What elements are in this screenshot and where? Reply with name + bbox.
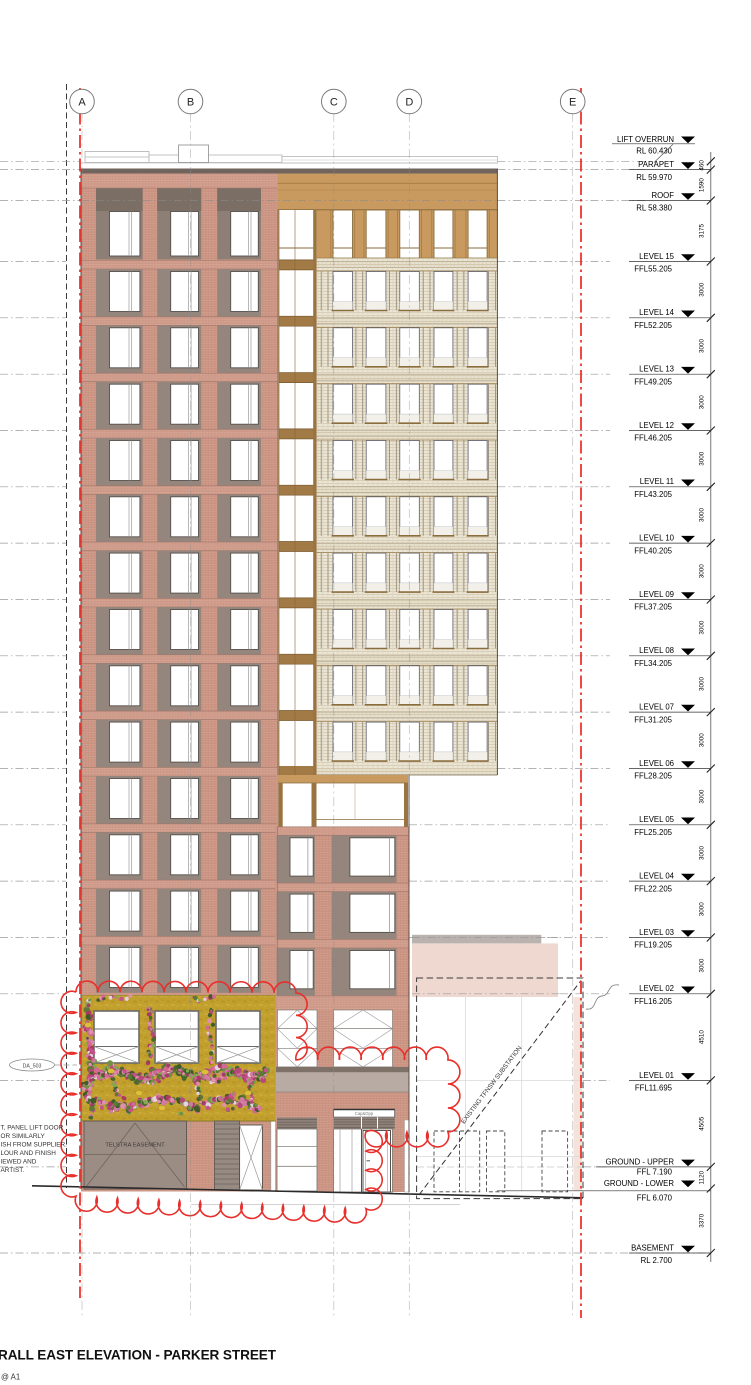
svg-text:FFL49.205: FFL49.205 [634,377,672,386]
svg-text:FFL34.205: FFL34.205 [634,659,672,668]
svg-text:LEVEL 09: LEVEL 09 [639,590,674,599]
svg-text:GROUND - UPPER: GROUND - UPPER [606,1157,675,1166]
svg-text:RL 2.700: RL 2.700 [641,1256,673,1265]
svg-text:FFL19.205: FFL19.205 [634,941,672,950]
svg-text:RL 59.970: RL 59.970 [636,173,672,182]
svg-text:LEVEL 01: LEVEL 01 [639,1071,674,1080]
svg-text:3000: 3000 [699,508,706,523]
svg-text:LEVEL 05: LEVEL 05 [639,815,674,824]
svg-text:3000: 3000 [699,339,706,354]
svg-text:1120: 1120 [699,1170,706,1184]
svg-text:ISH FROM SUPPLIER.: ISH FROM SUPPLIER. [1,1142,68,1149]
svg-text:BASEMENT: BASEMENT [631,1243,674,1252]
svg-text:FFL25.205: FFL25.205 [634,828,672,837]
svg-text:PARAPET: PARAPET [638,160,674,169]
svg-text:FFL46.205: FFL46.205 [634,434,672,443]
svg-text:@ A1: @ A1 [1,1373,20,1382]
svg-text:LOUR AND FINISH: LOUR AND FINISH [1,1150,57,1157]
svg-text:LEVEL 03: LEVEL 03 [639,928,674,937]
svg-text:LEVEL 04: LEVEL 04 [639,872,674,881]
svg-text:3000: 3000 [699,395,706,410]
svg-text:T, PANEL LIFT DOOR: T, PANEL LIFT DOOR [1,1125,64,1132]
svg-text:3000: 3000 [699,902,706,917]
svg-text:4510: 4510 [699,1030,706,1045]
svg-text:FFL 6.070: FFL 6.070 [637,1194,673,1203]
svg-text:FFL22.205: FFL22.205 [634,884,672,893]
svg-text:LEVEL 07: LEVEL 07 [639,703,674,712]
svg-text:FFL37.205: FFL37.205 [634,603,672,612]
svg-text:RL 60.430: RL 60.430 [636,146,672,155]
svg-text:FFL11.695: FFL11.695 [635,1084,673,1093]
svg-text:3000: 3000 [699,789,706,804]
svg-text:4505: 4505 [699,1116,706,1131]
svg-text:3000: 3000 [699,282,706,297]
svg-text:FFL40.205: FFL40.205 [634,546,672,555]
svg-text:LEVEL 14: LEVEL 14 [639,308,674,317]
svg-text:FFL31.205: FFL31.205 [634,715,672,724]
svg-text:3370: 3370 [699,1213,706,1228]
svg-text:3000: 3000 [699,677,706,692]
svg-text:GROUND - LOWER: GROUND - LOWER [604,1179,675,1188]
svg-text:RALL EAST ELEVATION - PARKER S: RALL EAST ELEVATION - PARKER STREET [0,1348,277,1363]
svg-text:LEVEL 15: LEVEL 15 [639,252,674,261]
svg-text:3000: 3000 [699,733,706,748]
svg-text:3000: 3000 [699,958,706,973]
svg-text:D: D [405,97,413,109]
svg-text:C: C [330,97,338,109]
svg-text:LEVEL 11: LEVEL 11 [640,477,674,486]
svg-text:E: E [569,97,576,109]
svg-text:TELSTRA EASEMENT: TELSTRA EASEMENT [105,1143,165,1149]
svg-text:460: 460 [699,160,706,171]
svg-text:LEVEL 12: LEVEL 12 [639,421,674,430]
svg-text:RL 58.380: RL 58.380 [636,204,672,213]
svg-text:3175: 3175 [699,224,706,239]
svg-text:FFL28.205: FFL28.205 [634,772,672,781]
svg-text:DA_503: DA_503 [23,1063,42,1069]
svg-text:LIFT OVERRUN: LIFT OVERRUN [617,135,674,144]
svg-text:LEVEL 10: LEVEL 10 [639,534,674,543]
svg-text:LEVEL 13: LEVEL 13 [639,365,674,374]
svg-text:3000: 3000 [699,846,706,861]
svg-text:B: B [187,97,194,109]
svg-text:3000: 3000 [699,620,706,635]
svg-text:Cap&Opp: Cap&Opp [355,1111,374,1116]
svg-text:FFL16.205: FFL16.205 [634,997,672,1006]
svg-text:FFL55.205: FFL55.205 [634,265,672,274]
svg-text:IEWED AND: IEWED AND [1,1159,37,1166]
svg-text:FFL52.205: FFL52.205 [634,321,672,330]
svg-text:1590: 1590 [699,178,706,193]
svg-text:3000: 3000 [699,451,706,466]
svg-text:ARTIST.: ARTIST. [1,1167,25,1174]
svg-text:FFL43.205: FFL43.205 [634,490,672,499]
svg-text:A: A [78,97,86,109]
svg-text:ROOF: ROOF [651,191,674,200]
svg-text:LEVEL 08: LEVEL 08 [639,646,674,655]
svg-text:LEVEL 06: LEVEL 06 [639,759,674,768]
svg-text:LEVEL 02: LEVEL 02 [639,984,674,993]
svg-text:EXISTING TFNSW SUBSTATION: EXISTING TFNSW SUBSTATION [460,1044,524,1125]
svg-text:OR SIMILARLY: OR SIMILARLY [1,1133,46,1140]
svg-text:3000: 3000 [699,564,706,579]
svg-text:FFL 7.190: FFL 7.190 [637,1168,673,1177]
